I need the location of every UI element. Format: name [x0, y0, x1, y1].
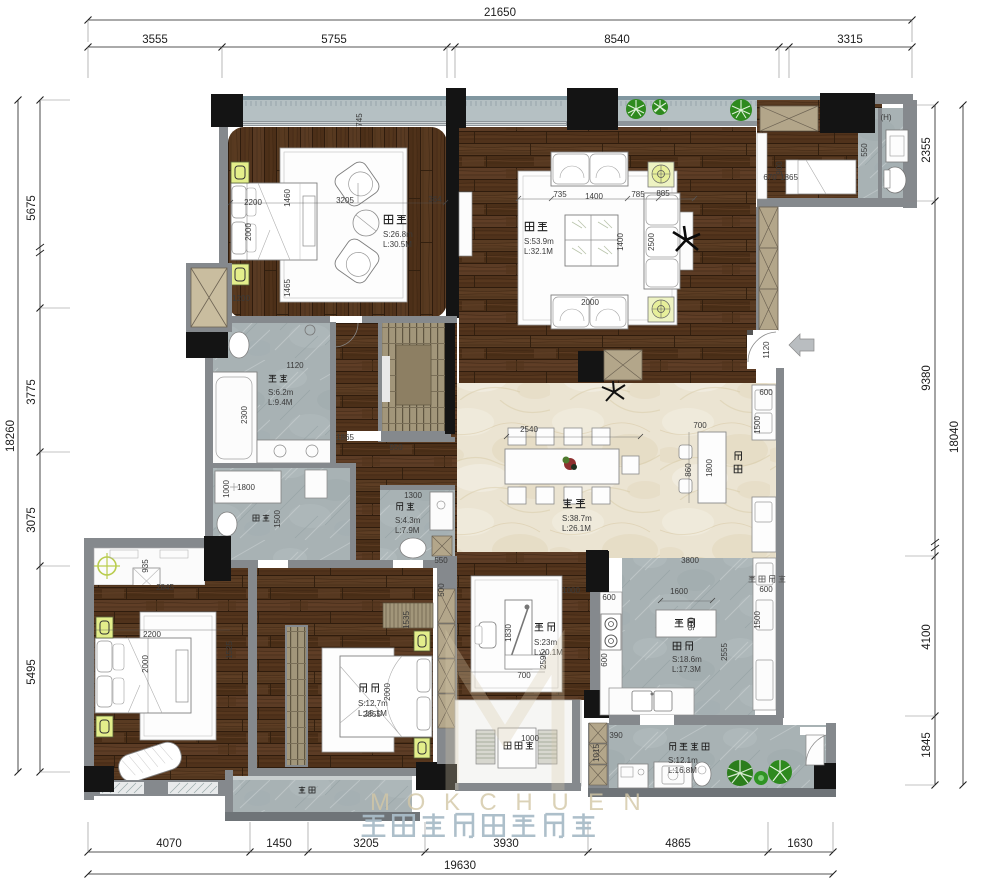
svg-text:600: 600: [759, 585, 773, 594]
svg-text:1400: 1400: [585, 192, 603, 201]
svg-text:S:23m: S:23m: [534, 638, 557, 647]
svg-text:4100: 4100: [921, 624, 933, 650]
svg-text:19630: 19630: [444, 860, 476, 872]
svg-text:1465: 1465: [283, 279, 292, 297]
svg-text:2845: 2845: [156, 583, 174, 592]
svg-text:S:6.2m: S:6.2m: [268, 388, 294, 397]
svg-text:2000: 2000: [141, 655, 150, 673]
svg-text:3315: 3315: [837, 34, 863, 46]
svg-text:5755: 5755: [321, 34, 347, 46]
svg-text:E: E: [588, 789, 604, 816]
svg-text:1460: 1460: [283, 189, 292, 207]
svg-text:2000: 2000: [581, 298, 599, 307]
svg-text:U: U: [551, 789, 568, 816]
svg-text:2555: 2555: [720, 643, 729, 661]
svg-text:1800: 1800: [237, 483, 255, 492]
svg-text:1630: 1630: [787, 838, 813, 850]
svg-text:L:32.1M: L:32.1M: [524, 247, 553, 256]
svg-text:8540: 8540: [604, 34, 630, 46]
svg-text:3930: 3930: [493, 838, 519, 850]
svg-text:1120: 1120: [762, 341, 771, 359]
svg-text:700: 700: [517, 671, 531, 680]
svg-text:L:26.1M: L:26.1M: [562, 524, 591, 533]
svg-text:3800: 3800: [681, 556, 699, 565]
svg-text:3205: 3205: [336, 196, 354, 205]
svg-text:390: 390: [609, 731, 623, 740]
svg-text:950: 950: [389, 443, 403, 452]
svg-text:4070: 4070: [156, 838, 182, 850]
svg-text:S:38.7m: S:38.7m: [562, 514, 592, 523]
svg-text:3075: 3075: [26, 507, 38, 533]
svg-text:M: M: [370, 789, 390, 816]
svg-text:2500: 2500: [647, 233, 656, 251]
svg-text:18040: 18040: [949, 421, 961, 453]
svg-text:1000: 1000: [521, 734, 539, 743]
svg-text:3775: 3775: [26, 379, 38, 405]
svg-text:21650: 21650: [484, 7, 516, 19]
svg-text:1535: 1535: [402, 611, 411, 629]
svg-text:S:53.9m: S:53.9m: [524, 237, 554, 246]
svg-text:L:17.3M: L:17.3M: [672, 665, 701, 674]
svg-text:1450: 1450: [266, 838, 292, 850]
svg-text:364: 364: [428, 195, 442, 204]
svg-text:2300: 2300: [240, 406, 249, 424]
svg-text:700: 700: [693, 421, 707, 430]
svg-text:S:26.8m: S:26.8m: [383, 230, 413, 239]
svg-text:1865: 1865: [336, 433, 354, 442]
svg-text:600: 600: [600, 653, 609, 667]
svg-text:600: 600: [602, 593, 616, 602]
svg-text:4865: 4865: [665, 838, 691, 850]
svg-text:L:7.9M: L:7.9M: [395, 526, 420, 535]
svg-text:500: 500: [437, 583, 446, 597]
svg-text:S:12.1m: S:12.1m: [668, 756, 698, 765]
svg-text:O: O: [407, 789, 426, 816]
svg-text:C: C: [479, 789, 496, 816]
svg-text:2355: 2355: [921, 137, 933, 163]
svg-text:S:4.3m: S:4.3m: [395, 516, 421, 525]
svg-text:600: 600: [759, 388, 773, 397]
svg-text:735: 735: [553, 190, 567, 199]
svg-text:3555: 3555: [142, 34, 168, 46]
svg-text:1800: 1800: [705, 459, 714, 477]
svg-text:H: H: [515, 789, 532, 816]
svg-text:2200: 2200: [143, 630, 161, 639]
svg-text:550: 550: [434, 556, 448, 565]
svg-text:L:30.5M: L:30.5M: [383, 240, 412, 249]
svg-text:1000: 1000: [222, 480, 231, 498]
svg-text:785: 785: [631, 190, 645, 199]
svg-text:550: 550: [860, 143, 869, 157]
svg-text:S:18.6m: S:18.6m: [672, 655, 702, 664]
svg-text:K: K: [444, 789, 460, 816]
svg-text:1200: 1200: [232, 294, 250, 303]
svg-text:1600: 1600: [670, 587, 688, 596]
svg-text:1845: 1845: [921, 732, 933, 758]
svg-text:1500: 1500: [753, 416, 762, 434]
svg-text:3205: 3205: [353, 838, 379, 850]
svg-text:N: N: [623, 789, 640, 816]
svg-text:5675: 5675: [26, 195, 38, 221]
svg-text:1500: 1500: [753, 611, 762, 629]
svg-text:1500: 1500: [273, 510, 282, 528]
svg-text:L:9.4M: L:9.4M: [268, 398, 293, 407]
svg-text:2000: 2000: [244, 223, 253, 241]
svg-text:2200: 2200: [244, 198, 262, 207]
svg-text:2540: 2540: [520, 425, 538, 434]
svg-text:1000: 1000: [562, 586, 580, 595]
svg-text:1525: 1525: [225, 641, 234, 659]
svg-text:1120: 1120: [286, 361, 304, 370]
svg-text:1015: 1015: [592, 744, 601, 762]
svg-text:1830: 1830: [504, 624, 513, 642]
svg-text:860: 860: [684, 463, 693, 477]
svg-text:L:16.8M: L:16.8M: [668, 766, 697, 775]
svg-text:5495: 5495: [26, 659, 38, 685]
svg-text:18260: 18260: [5, 420, 17, 452]
svg-text:(H): (H): [880, 113, 891, 122]
svg-text:745: 745: [355, 113, 364, 127]
svg-text:935: 935: [141, 559, 150, 573]
svg-text:1300: 1300: [404, 491, 422, 500]
svg-text:885: 885: [656, 189, 670, 198]
svg-text:S:12.7m: S:12.7m: [358, 699, 388, 708]
svg-text:L:15.1M: L:15.1M: [358, 709, 387, 718]
svg-text:900: 900: [775, 161, 784, 175]
svg-text:9380: 9380: [921, 365, 933, 391]
svg-text:1400: 1400: [616, 233, 625, 251]
